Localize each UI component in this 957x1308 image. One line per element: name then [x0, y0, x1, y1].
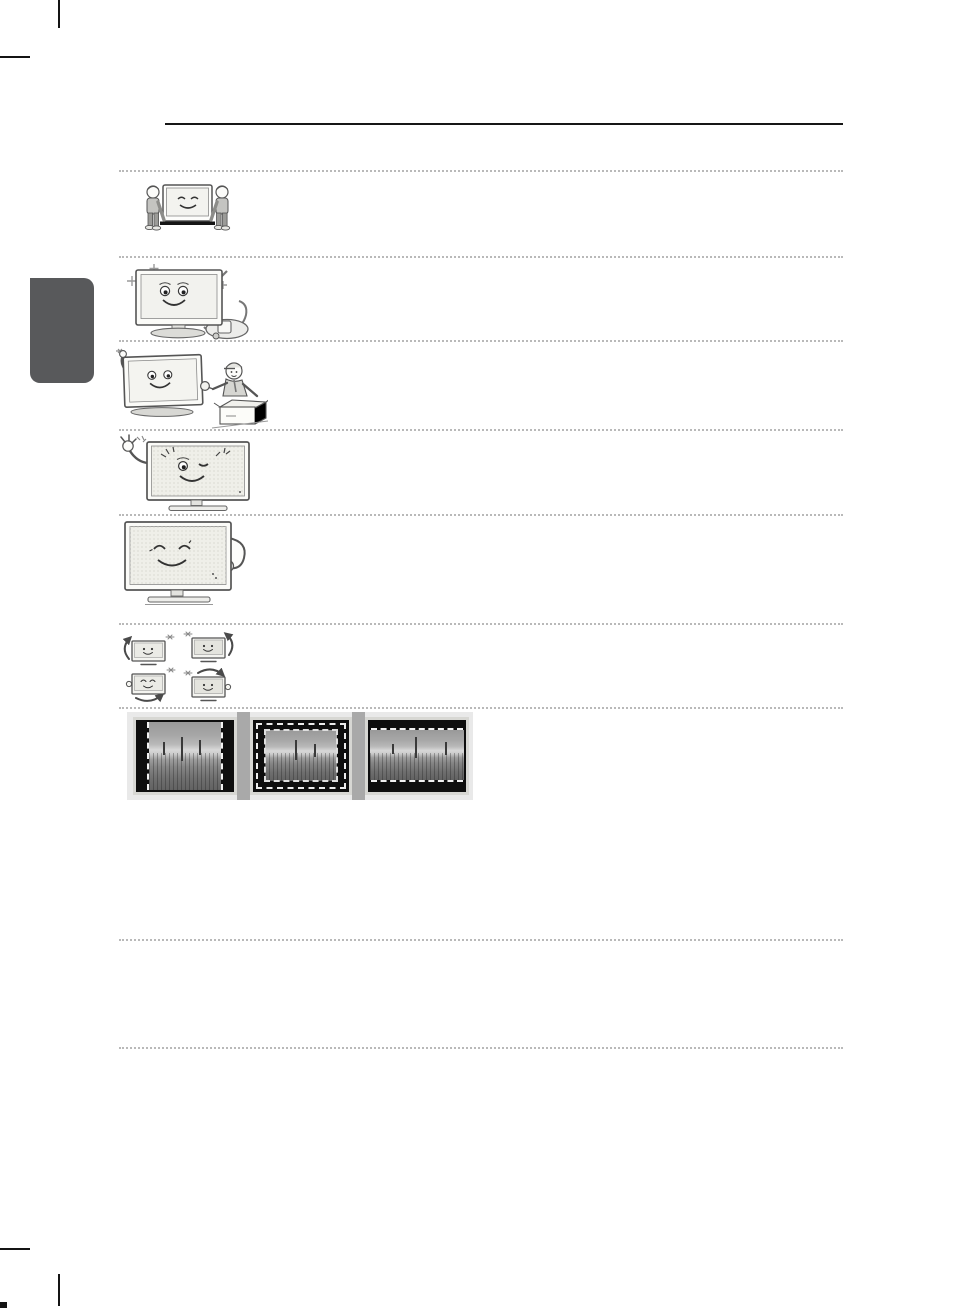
crop-mark-bottom-vertical [58, 1274, 60, 1306]
dashed-guide-top [371, 728, 463, 730]
screen-format-examples-strip [127, 712, 473, 800]
crop-mark-top-horizontal [0, 56, 30, 58]
dashed-guide-right [221, 722, 223, 790]
dotted-separator [119, 939, 843, 941]
letterbox-example [365, 717, 469, 795]
clean-tv-illustration [124, 263, 260, 343]
landscape-photo [370, 730, 464, 780]
wink-tv-illustration [117, 434, 253, 514]
crop-mark-top-vertical [58, 0, 60, 28]
dotted-separator [119, 256, 843, 258]
strip-gap [352, 712, 365, 800]
dotted-separator [119, 707, 843, 709]
strip-gap [237, 712, 250, 800]
landscape-photo [149, 722, 221, 790]
dotted-separator [119, 623, 843, 625]
dotted-separator [119, 514, 843, 516]
dashed-guide-bottom [371, 780, 463, 782]
chapter-edge-tab [30, 278, 94, 383]
crop-mark-bottom-horizontal [0, 1248, 30, 1250]
carry-tv-illustration [140, 179, 235, 251]
section-title-rule [165, 123, 843, 125]
dashed-guide-left [147, 722, 149, 790]
dashed-guide-inner [264, 729, 338, 782]
manual-page: { "page": { "kind": "tv-manual-illustrat… [0, 0, 957, 1308]
dotted-separator [119, 1047, 843, 1049]
pillarbox-example [133, 717, 237, 795]
relaxed-tv-illustration [121, 518, 249, 608]
windowbox-example [250, 717, 352, 795]
registration-corner-mark [0, 1302, 7, 1308]
rotate-tvs-illustration [122, 631, 246, 703]
dotted-separator [119, 170, 843, 172]
service-tv-illustration [116, 346, 268, 430]
